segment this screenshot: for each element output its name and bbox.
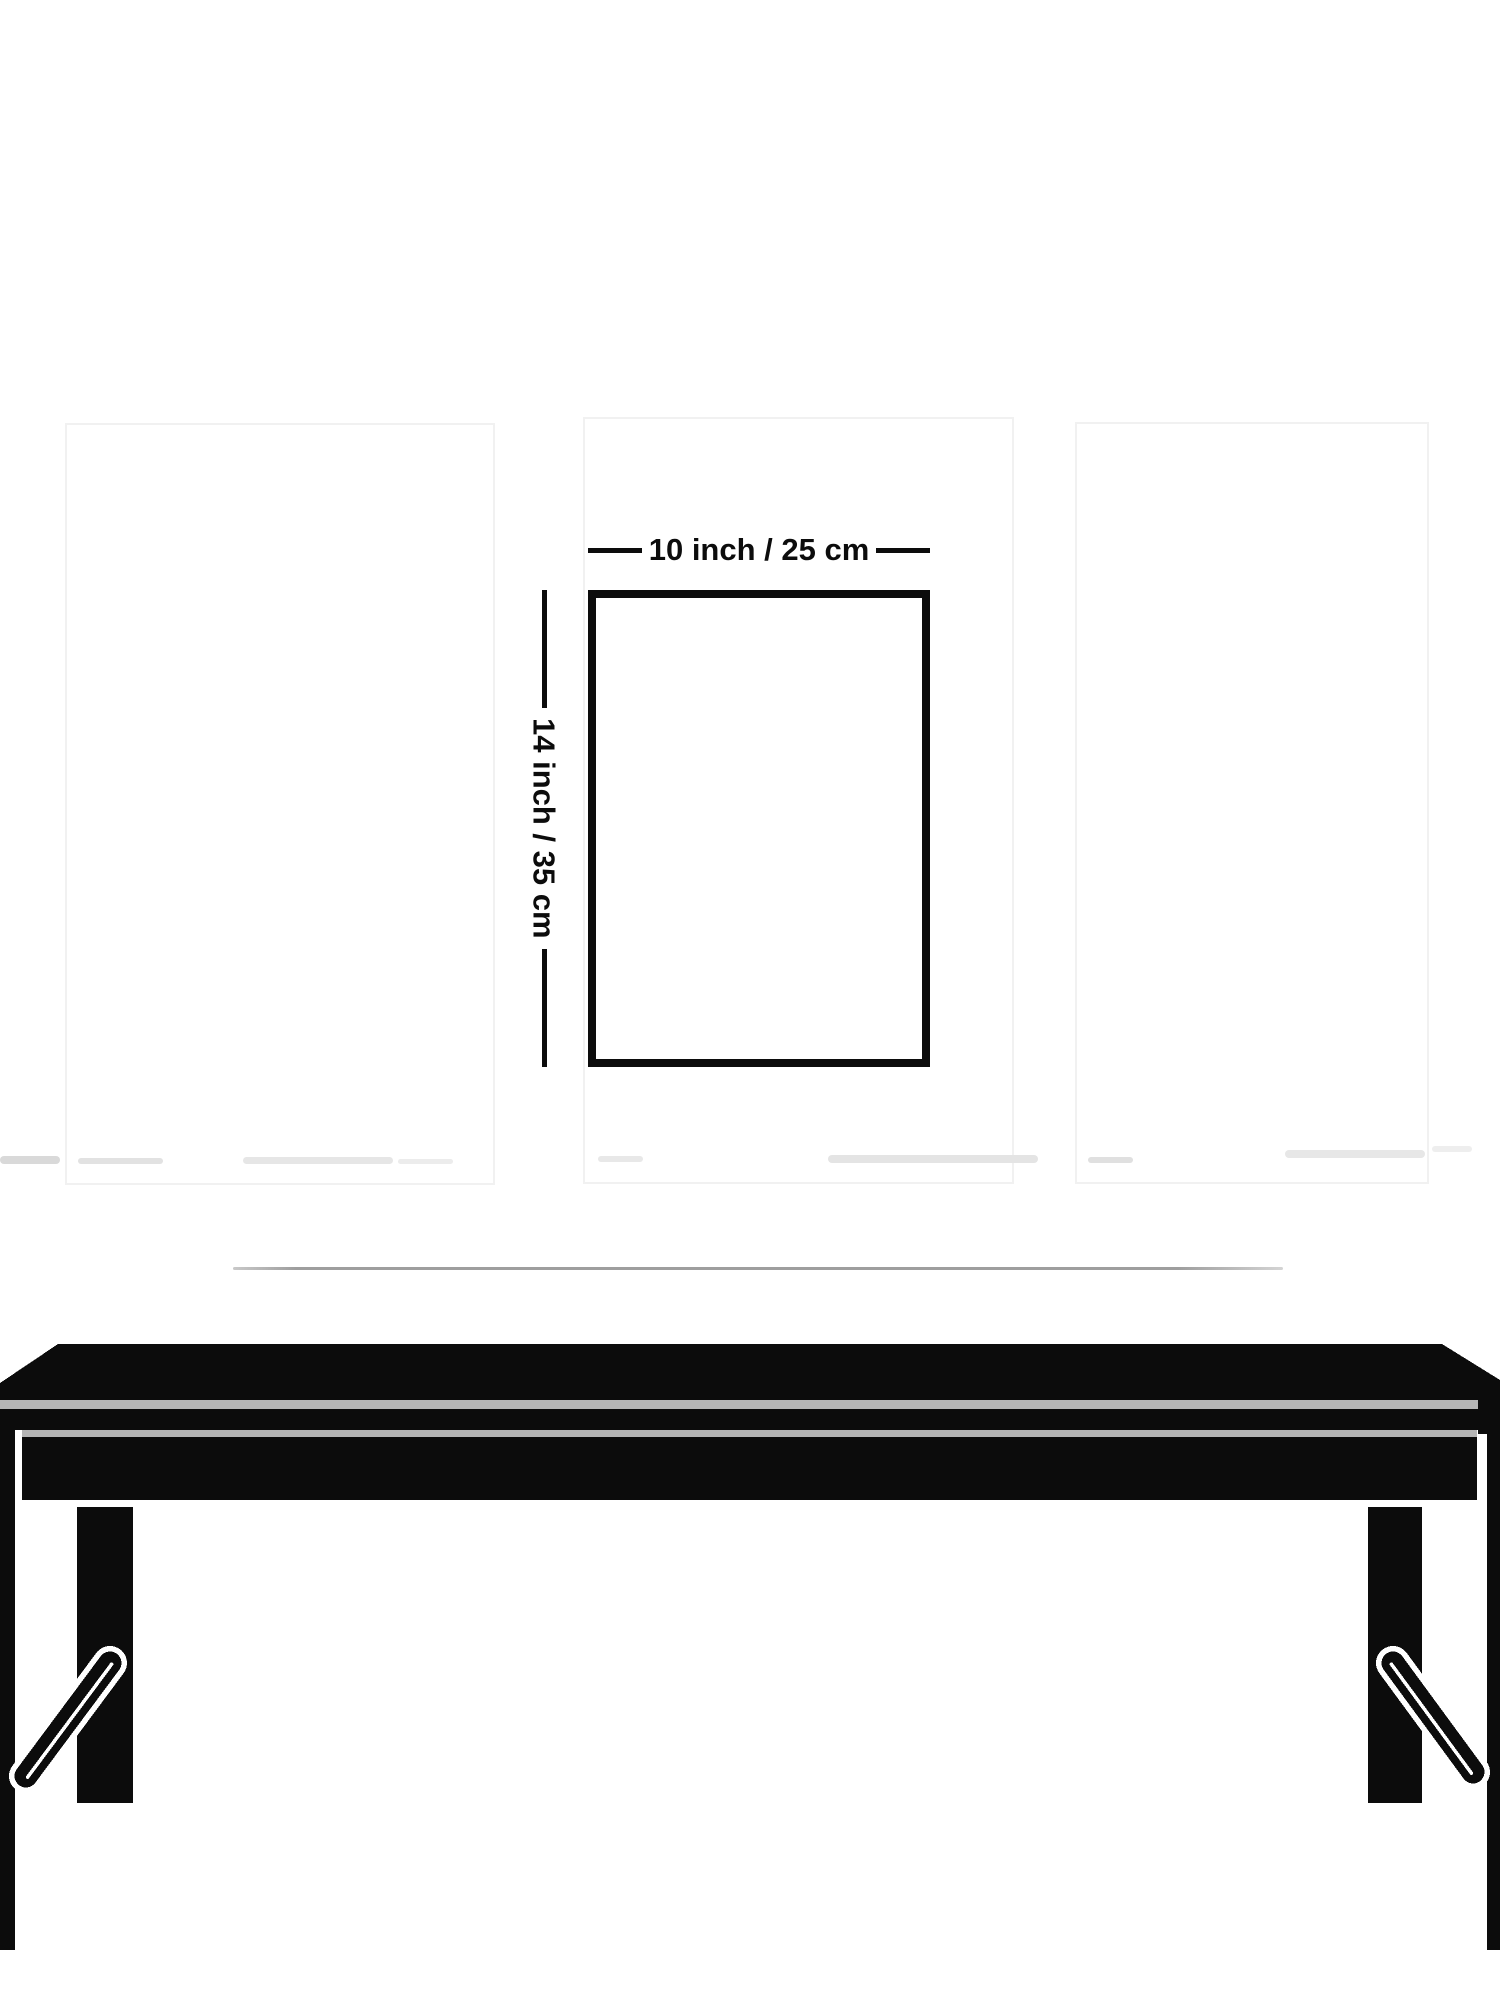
dimension-tick-line-left [588, 548, 642, 553]
height-dimension-text: 14 inch / 35 cm [529, 708, 560, 949]
table-back-leg-right [1487, 1433, 1500, 1950]
shadow-smudge [1432, 1146, 1472, 1152]
faded-table-edge-line [233, 1267, 1283, 1270]
width-dimension-text: 10 inch / 25 cm [642, 534, 877, 565]
shadow-smudge [828, 1155, 1038, 1163]
shadow-smudge [0, 1156, 60, 1164]
tabletop [0, 1344, 1500, 1401]
table-silhouette [0, 1330, 1500, 2000]
dimension-tick-line-bottom [542, 949, 547, 1067]
shadow-smudge [398, 1159, 453, 1164]
dimension-tick-line-right [876, 548, 930, 553]
artwork-size-outline [588, 590, 930, 1067]
shadow-smudge [78, 1158, 163, 1164]
tabletop-divider-lower [22, 1430, 1477, 1437]
faded-wall-frame-right [1075, 422, 1429, 1184]
shadow-smudge [598, 1156, 643, 1162]
table-apron [22, 1437, 1477, 1500]
width-dimension-label: 10 inch / 25 cm [588, 530, 930, 570]
dimension-tick-line-top [542, 590, 547, 708]
faded-wall-frame-left [65, 423, 495, 1185]
product-dimension-diagram: 10 inch / 25 cm 14 inch / 35 cm [0, 0, 1500, 2000]
height-dimension-label: 14 inch / 35 cm [523, 590, 565, 1067]
shadow-smudge [1088, 1157, 1133, 1163]
shadow-smudge [1285, 1150, 1425, 1158]
tabletop-divider-upper [0, 1400, 1478, 1409]
table-back-leg-left [0, 1430, 15, 1950]
shadow-smudge [243, 1157, 393, 1164]
tabletop-band [0, 1409, 1500, 1430]
